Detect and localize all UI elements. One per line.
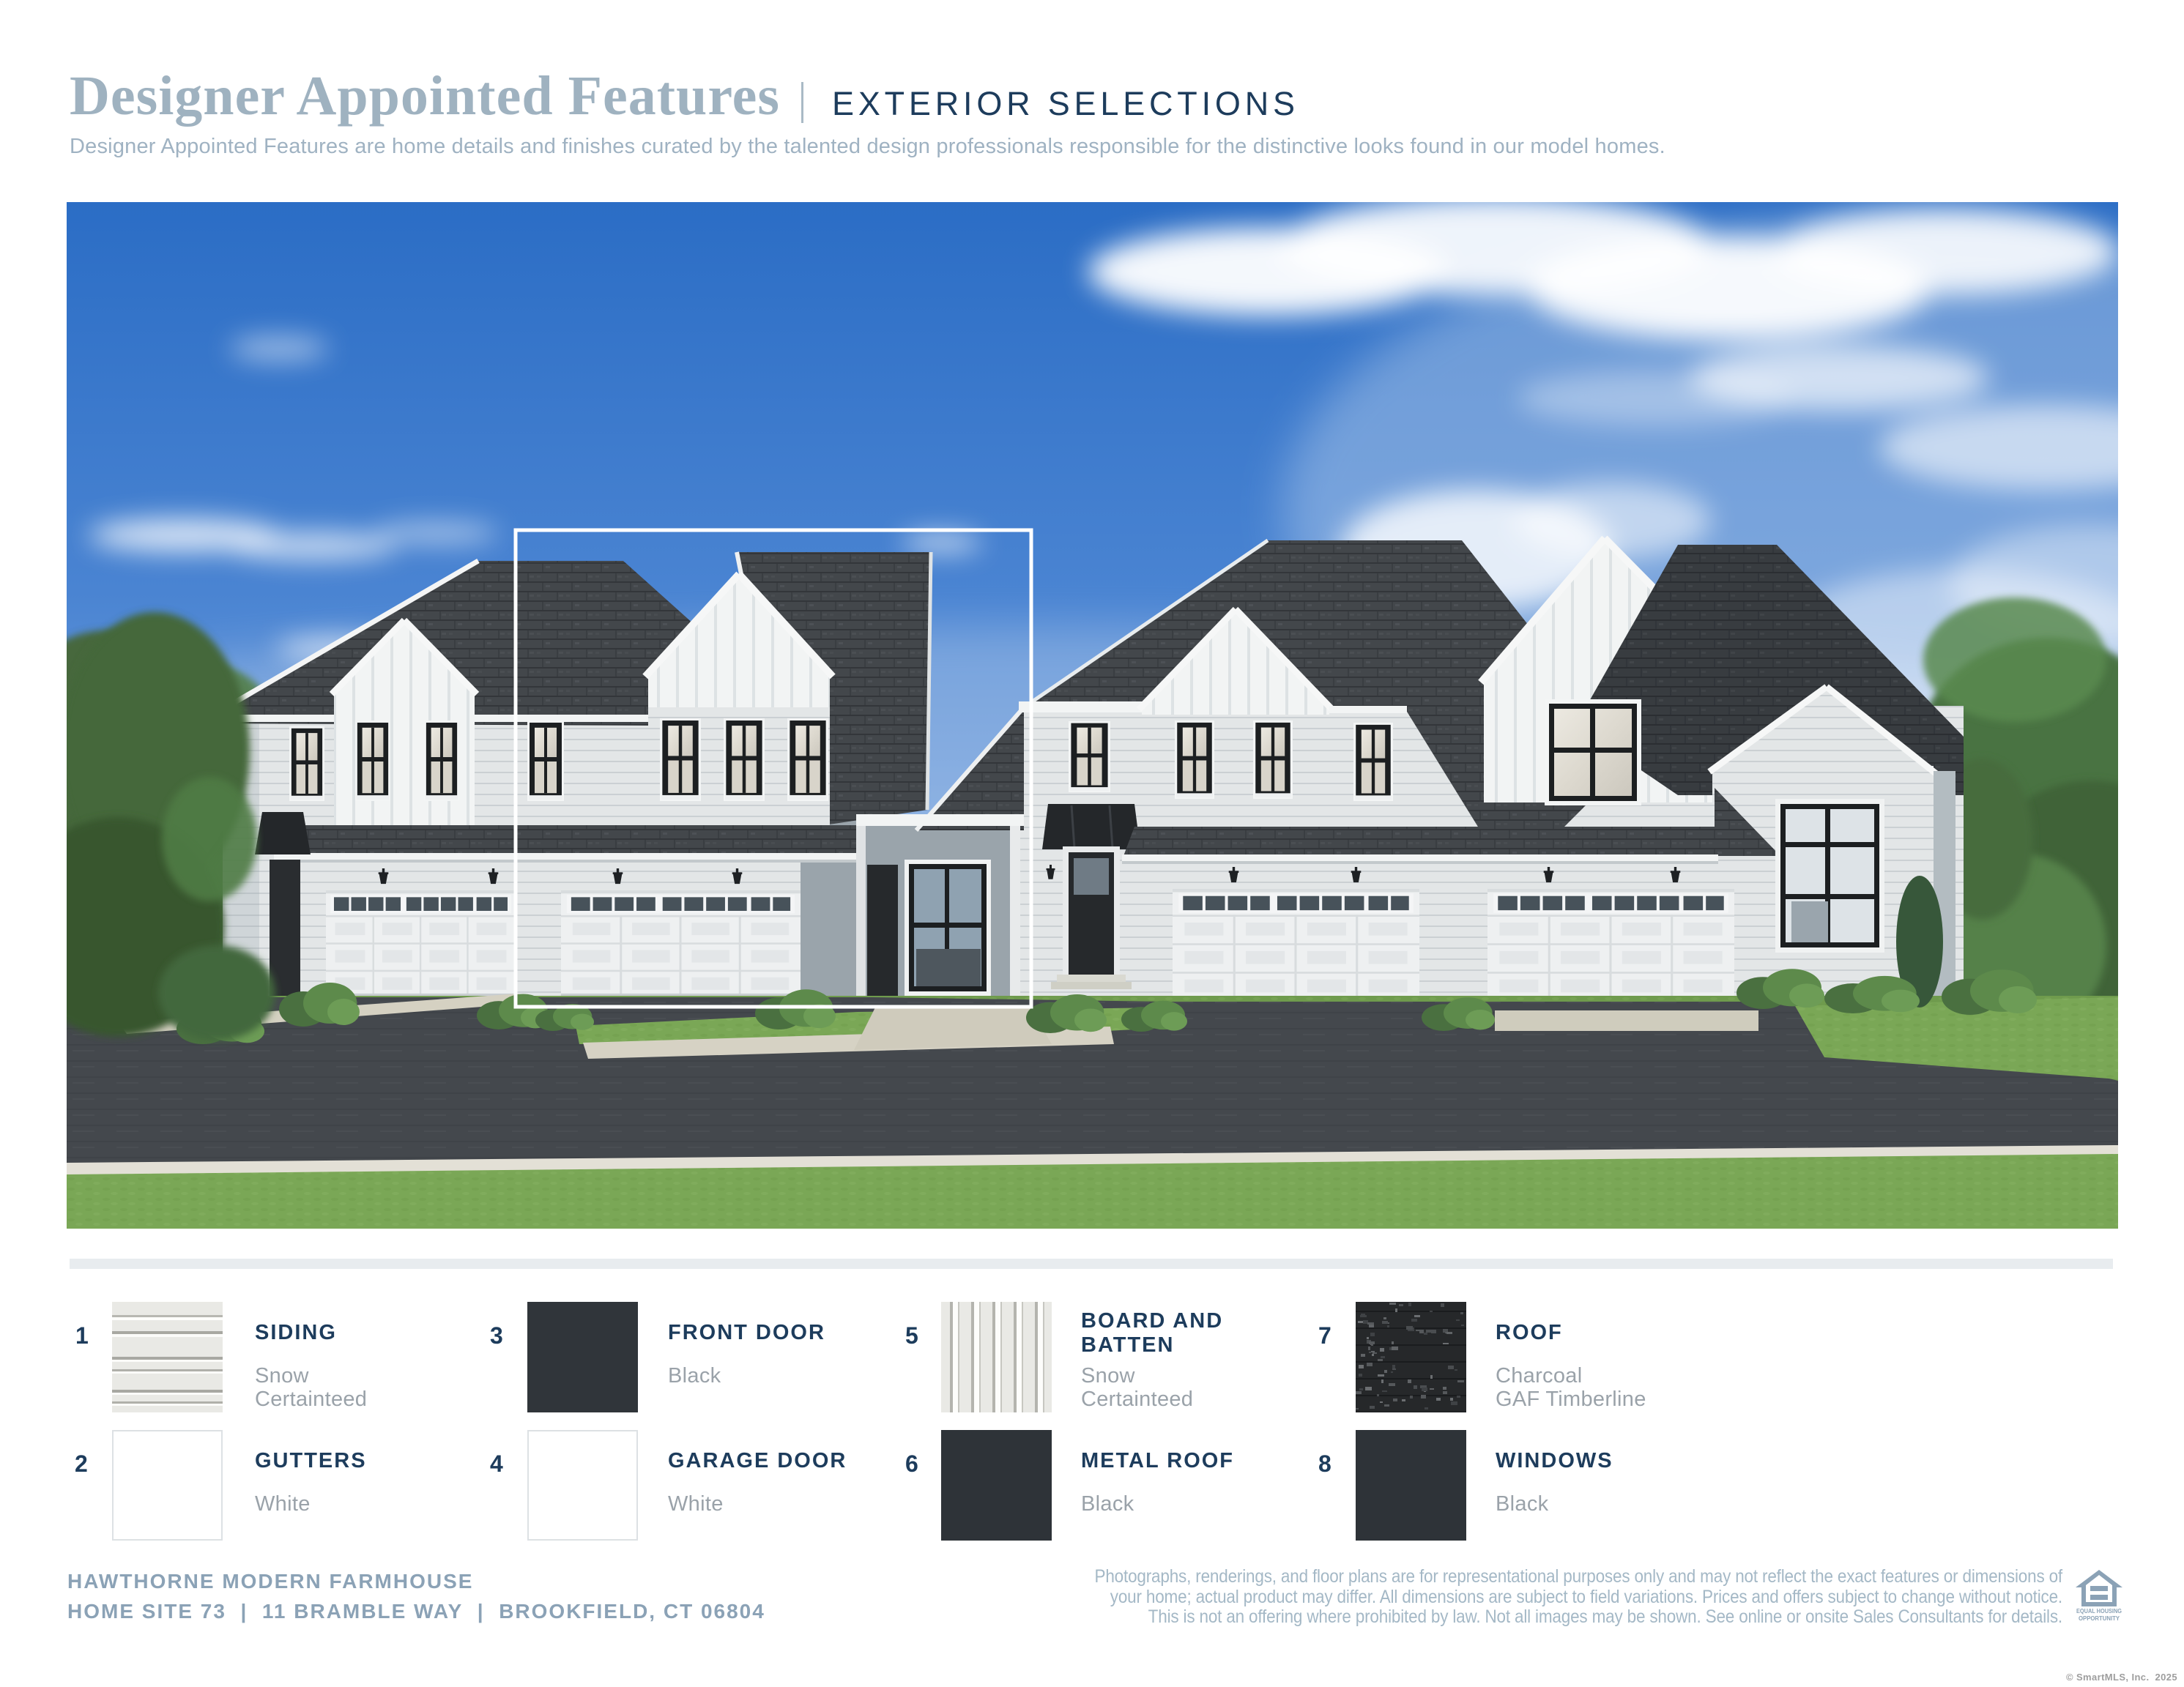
svg-text:EQUAL HOUSING: EQUAL HOUSING <box>2076 1608 2122 1615</box>
svg-text:OPPORTUNITY: OPPORTUNITY <box>2079 1615 2120 1622</box>
